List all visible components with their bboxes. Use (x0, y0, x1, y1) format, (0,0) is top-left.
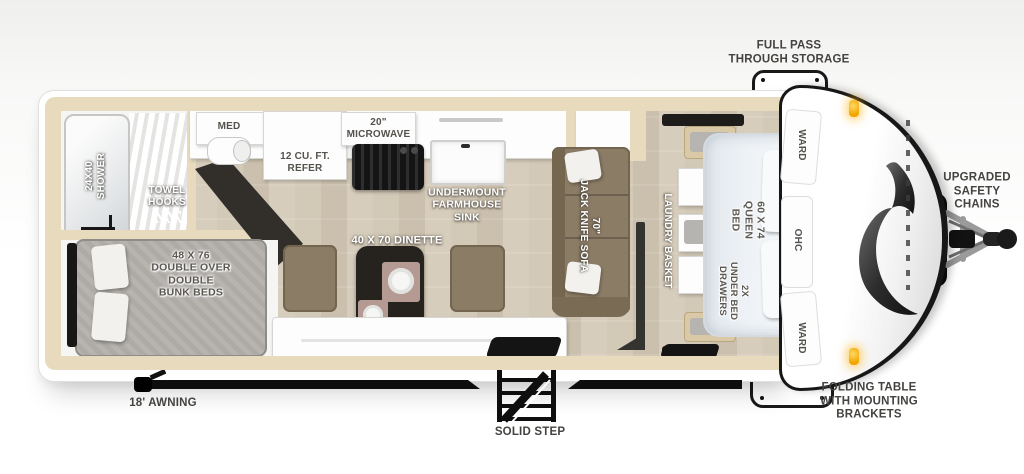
sink-label: UNDERMOUNT FARMHOUSE SINK (428, 186, 506, 223)
stove-knob-2 (411, 147, 418, 154)
sofa-armrest (552, 297, 630, 317)
under-bed-drawers-label: 2X UNDER BED DRAWERS (716, 262, 750, 320)
safety-chains-label: UPGRADED SAFETY CHAINS (943, 172, 1010, 213)
dinette-bench-left (283, 245, 337, 312)
cabinet-drawer-line (301, 339, 501, 342)
ohc-label: OHC (791, 229, 803, 252)
microwave: 20" MICROWAVE (341, 112, 416, 146)
bedroom-partition-wall (636, 222, 645, 350)
trailer-interior: 24X40 SHOWER TOWEL HOOKS 48 X 76 DOUBLE … (61, 111, 792, 356)
solid-step-icon (488, 368, 566, 426)
stove-knob-1 (400, 147, 407, 154)
bunk-headboard (67, 243, 77, 347)
ward-bottom-label: WARD (795, 322, 807, 353)
living-bedroom-wall (630, 111, 646, 161)
led-strip-2 (439, 118, 503, 122)
toilet-seat-icon (233, 140, 251, 162)
kitchen-living-divider (566, 111, 576, 150)
queen-bed-label: 60 X 74 QUEEN BED (729, 198, 766, 242)
solid-step-label: SOLID STEP (495, 426, 565, 440)
brand-logo-text-marks (906, 120, 910, 290)
folding-table-label: FOLDING TABLE WITH MOUNTING BRACKETS (820, 382, 918, 423)
faucet-icon (461, 144, 470, 148)
refrigerator: 12 CU. FT. REFER (263, 111, 347, 180)
marker-light-top (849, 100, 859, 117)
marker-light-bottom (849, 348, 859, 365)
bunk-beds-label: 48 X 76 DOUBLE OVER DOUBLE BUNK BEDS (151, 249, 230, 299)
storage-label: FULL PASS THROUGH STORAGE (729, 39, 850, 66)
awning-label: 18' AWNING (129, 397, 197, 411)
awning-bar-left (140, 380, 480, 389)
ward-top-label: WARD (795, 129, 807, 160)
microwave-label: 20" MICROWAVE (347, 117, 411, 141)
awning-end-cap (134, 377, 152, 392)
laundry-basket-label: LAUNDRY BASKET (661, 193, 673, 288)
towel-icon (153, 211, 181, 223)
towel-hooks-label: TOWEL HOOKS (148, 185, 186, 209)
bunk-pillow-bottom (91, 292, 129, 343)
sofa-overhead-cabinet (576, 111, 630, 151)
refrigerator-label: 12 CU. FT. REFER (280, 151, 330, 175)
awning-bar-right (568, 380, 742, 389)
entry-door-mat (486, 337, 563, 356)
brand-logo-swoosh-icon (852, 160, 932, 320)
bedroom-floor-mat (660, 344, 721, 356)
floorplan-scene: 24X40 SHOWER TOWEL HOOKS 48 X 76 DOUBLE … (0, 0, 1024, 474)
med-label: MED (218, 121, 241, 133)
shower-label: 24X40 SHOWER (84, 153, 108, 199)
shower-wand-icon (109, 215, 112, 229)
bedroom-window-top (662, 114, 744, 126)
bunk-pillow-top (91, 243, 129, 290)
sofa-pillow-top (564, 149, 602, 184)
plate-1 (388, 268, 414, 294)
sofa-label: 70" JACK KNIFE SOFA (577, 179, 601, 272)
dinette-bench-right (450, 245, 505, 312)
